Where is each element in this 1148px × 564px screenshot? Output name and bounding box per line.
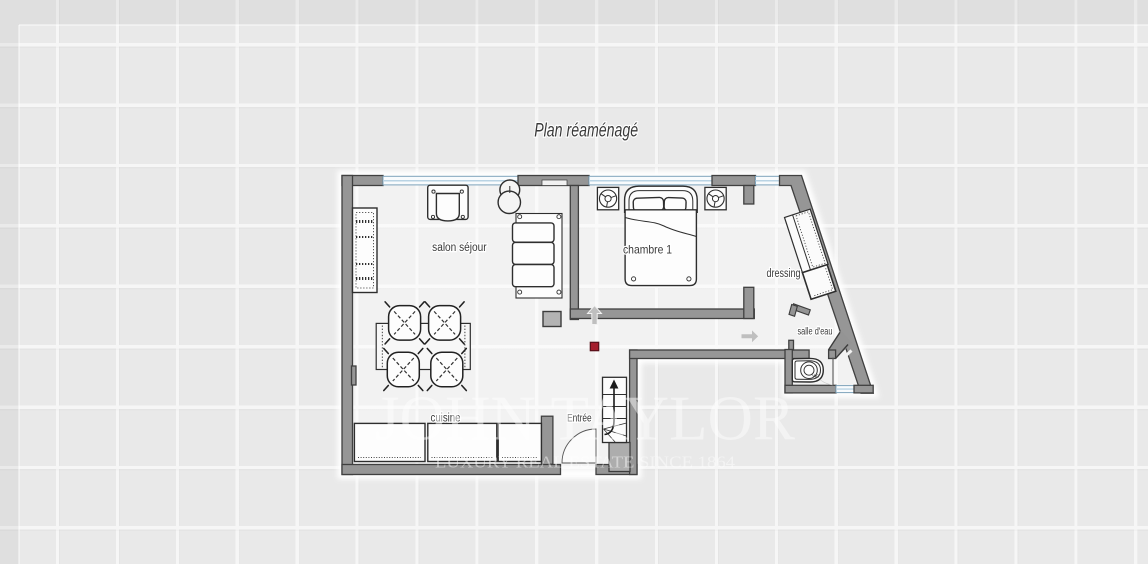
svg-text:JOHN TAYLOR: JOHN TAYLOR <box>375 383 795 454</box>
svg-text:Plan réaménagé: Plan réaménagé <box>534 119 638 141</box>
svg-text:wc: wc <box>811 373 819 379</box>
svg-text:LUXURY REAL ESTATE SINCE 1864: LUXURY REAL ESTATE SINCE 1864 <box>435 453 736 472</box>
svg-text:salon séjour: salon séjour <box>432 242 487 254</box>
svg-text:dressing: dressing <box>767 268 801 280</box>
svg-text:chambre 1: chambre 1 <box>623 243 672 257</box>
svg-text:salle d'eau: salle d'eau <box>798 327 833 338</box>
